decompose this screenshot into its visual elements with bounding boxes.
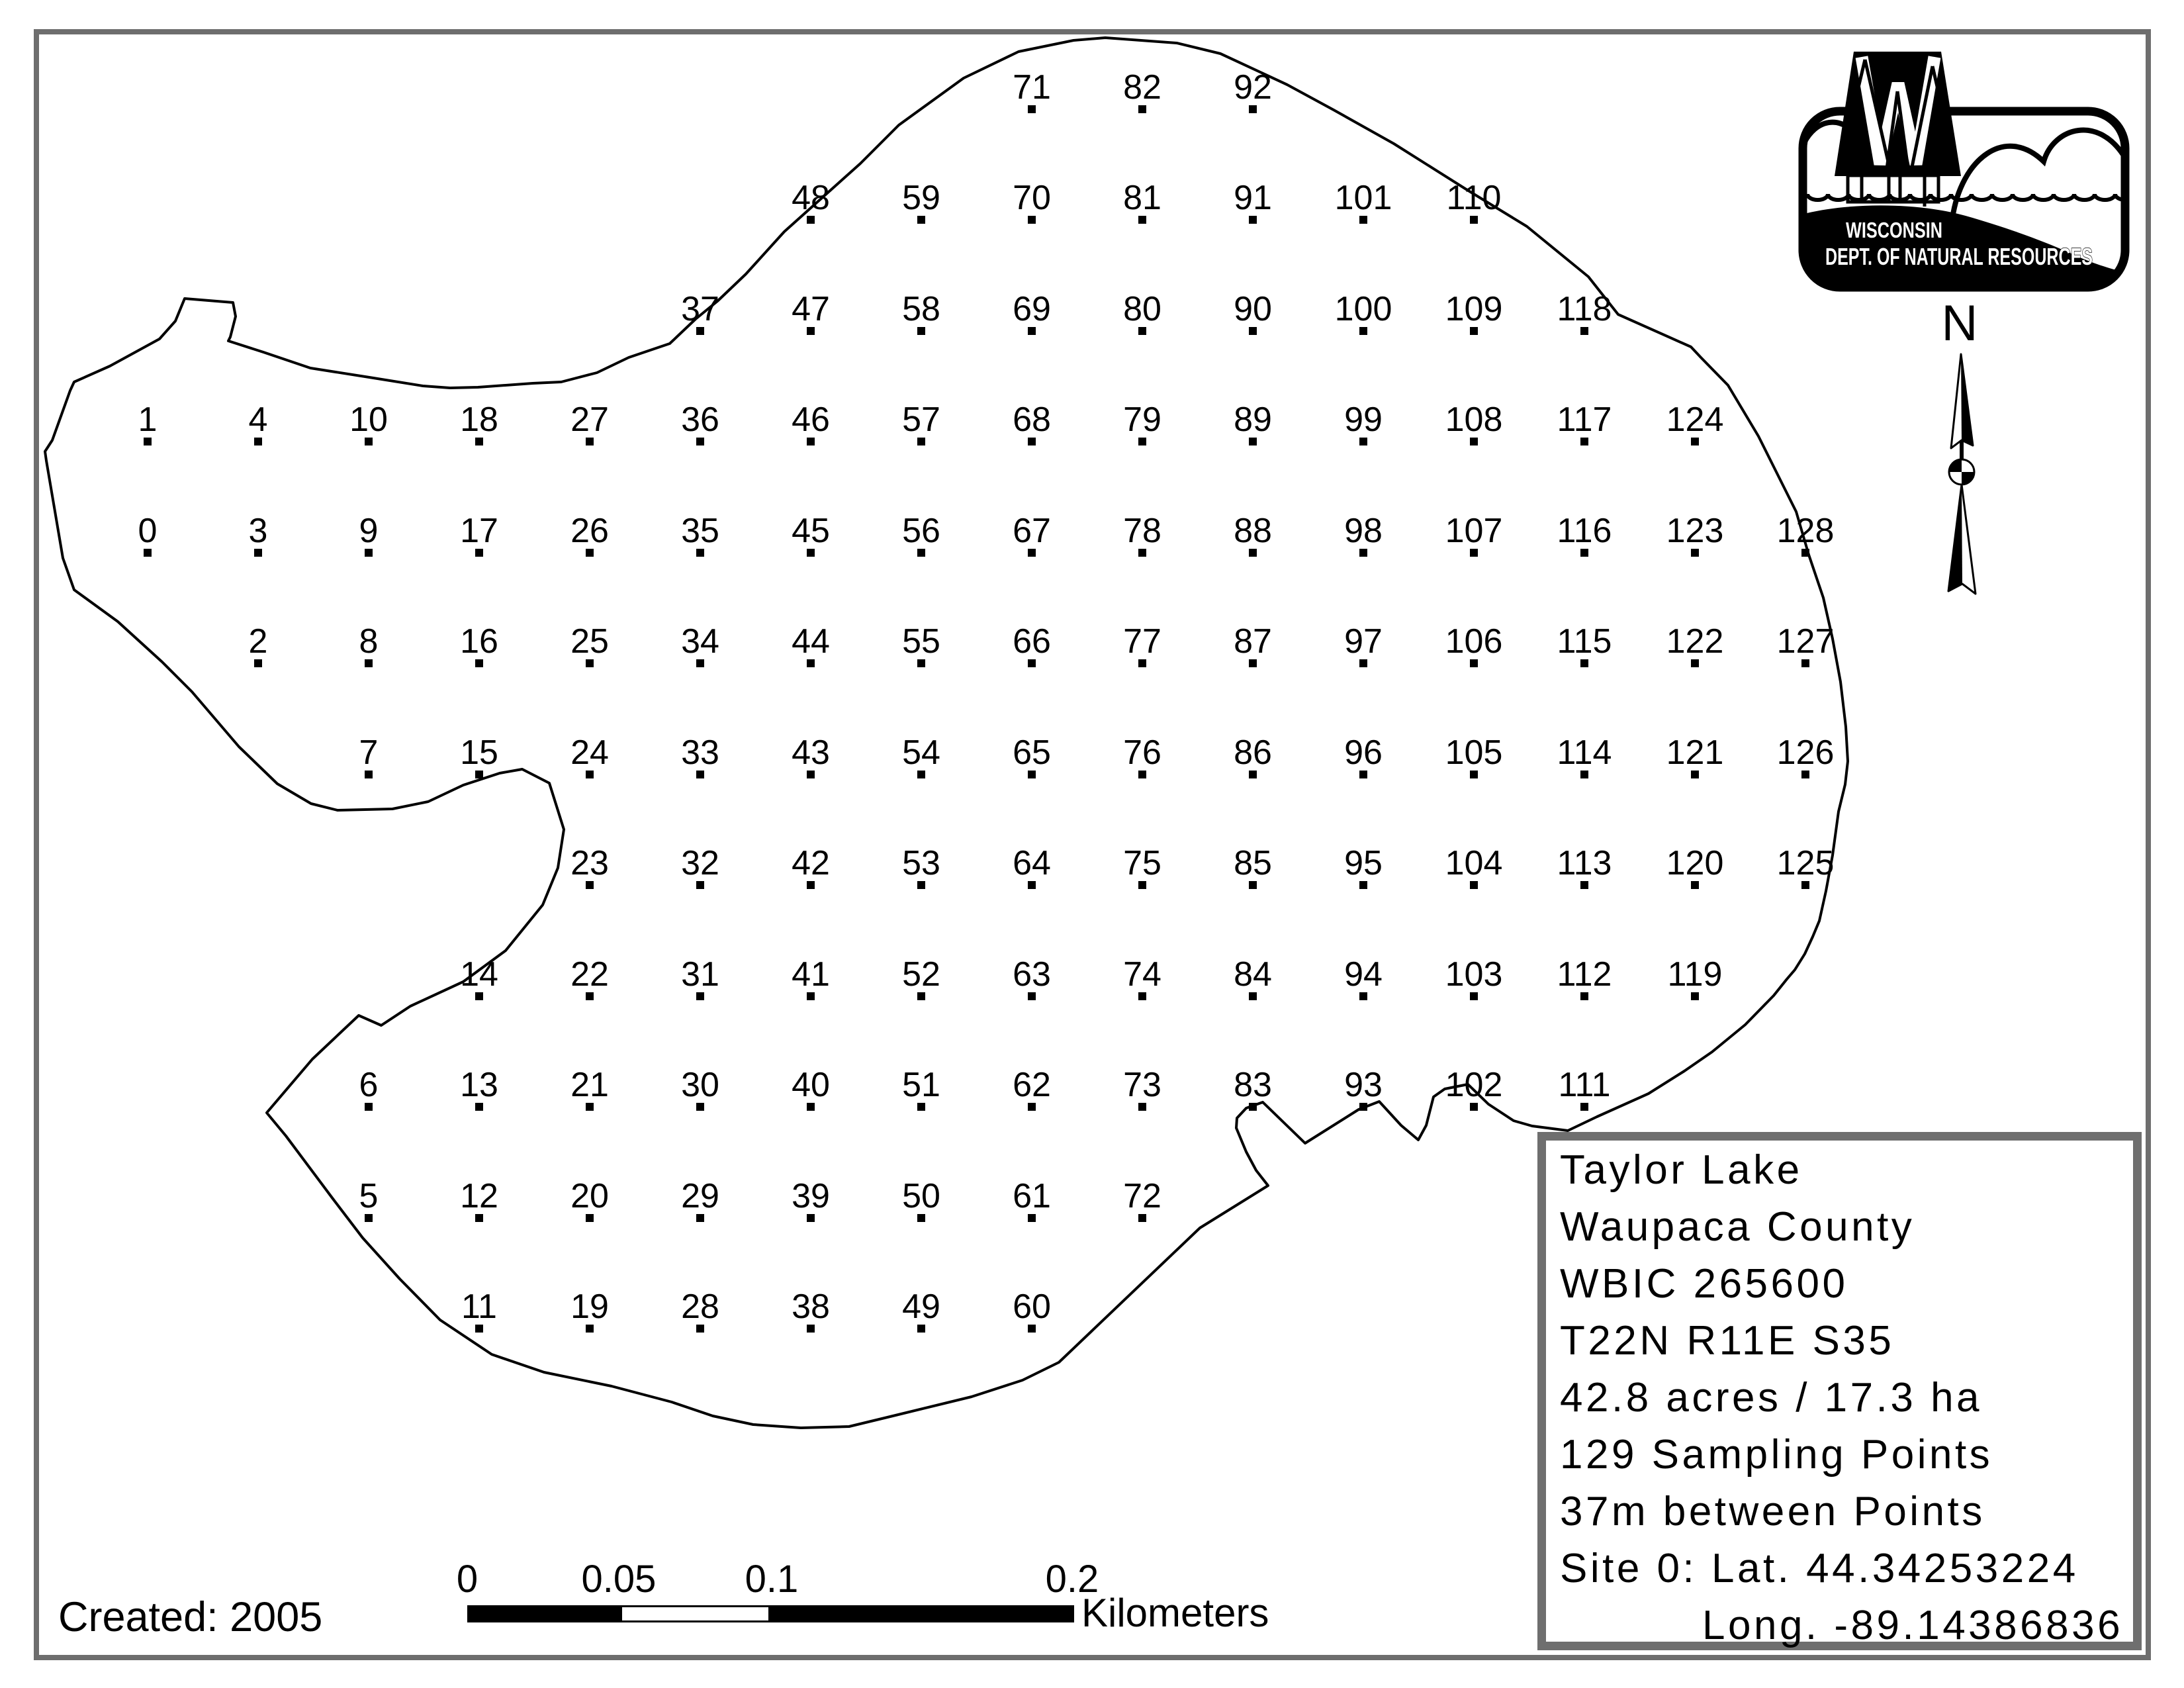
svg-text:12: 12 [460, 1177, 498, 1215]
svg-text:76: 76 [1123, 733, 1161, 772]
svg-text:118: 118 [1557, 290, 1612, 328]
svg-text:80: 80 [1123, 290, 1161, 328]
svg-text:46: 46 [792, 400, 830, 439]
svg-text:102: 102 [1445, 1066, 1503, 1104]
svg-text:95: 95 [1344, 844, 1383, 882]
svg-text:53: 53 [902, 844, 940, 882]
svg-text:Waupaca County: Waupaca County [1560, 1204, 1915, 1250]
svg-text:65: 65 [1013, 733, 1051, 772]
svg-text:19: 19 [570, 1288, 609, 1326]
svg-text:113: 113 [1557, 844, 1612, 882]
svg-text:56: 56 [902, 512, 940, 550]
svg-text:37: 37 [681, 290, 719, 328]
svg-text:83: 83 [1234, 1066, 1272, 1104]
svg-text:74: 74 [1123, 955, 1161, 994]
svg-text:84: 84 [1234, 955, 1272, 994]
svg-text:42: 42 [792, 844, 830, 882]
svg-text:94: 94 [1344, 955, 1383, 994]
svg-text:38: 38 [792, 1288, 830, 1326]
svg-text:30: 30 [681, 1066, 719, 1104]
svg-text:57: 57 [902, 400, 940, 439]
svg-text:15: 15 [460, 733, 498, 772]
svg-text:63: 63 [1013, 955, 1051, 994]
svg-text:0.05: 0.05 [582, 1558, 657, 1601]
svg-text:58: 58 [902, 290, 940, 328]
svg-text:119: 119 [1668, 955, 1723, 994]
svg-text:5: 5 [359, 1177, 379, 1215]
svg-text:10: 10 [349, 400, 388, 439]
svg-text:101: 101 [1335, 179, 1392, 217]
svg-text:4: 4 [249, 400, 268, 439]
svg-text:13: 13 [460, 1066, 498, 1104]
svg-text:11: 11 [461, 1288, 497, 1326]
svg-text:7: 7 [359, 733, 379, 772]
svg-text:127: 127 [1777, 622, 1835, 661]
svg-text:WISCONSIN: WISCONSIN [1846, 218, 1942, 242]
svg-text:3: 3 [249, 512, 268, 550]
svg-text:40: 40 [792, 1066, 830, 1104]
svg-text:25: 25 [570, 622, 609, 661]
svg-text:2: 2 [249, 622, 268, 661]
svg-text:97: 97 [1344, 622, 1383, 661]
svg-text:49: 49 [902, 1288, 940, 1326]
svg-text:67: 67 [1013, 512, 1051, 550]
svg-text:120: 120 [1666, 844, 1724, 882]
svg-text:26: 26 [570, 512, 609, 550]
svg-text:54: 54 [902, 733, 940, 772]
svg-text:109: 109 [1445, 290, 1503, 328]
svg-text:108: 108 [1445, 400, 1503, 439]
svg-text:Site 0: Lat. 44.34253224: Site 0: Lat. 44.34253224 [1560, 1546, 2079, 1591]
svg-text:52: 52 [902, 955, 940, 994]
svg-text:18: 18 [460, 400, 498, 439]
svg-text:36: 36 [681, 400, 719, 439]
svg-text:60: 60 [1013, 1288, 1051, 1326]
svg-text:29: 29 [681, 1177, 719, 1215]
svg-text:69: 69 [1013, 290, 1051, 328]
svg-text:28: 28 [681, 1288, 719, 1326]
svg-text:8: 8 [359, 622, 379, 661]
svg-text:79: 79 [1123, 400, 1161, 439]
svg-text:59: 59 [902, 179, 940, 217]
svg-text:78: 78 [1123, 512, 1161, 550]
svg-text:20: 20 [570, 1177, 609, 1215]
svg-text:125: 125 [1777, 844, 1835, 882]
svg-text:124: 124 [1666, 400, 1724, 439]
svg-text:WBIC 265600: WBIC 265600 [1560, 1261, 1848, 1307]
svg-text:Kilometers: Kilometers [1081, 1591, 1269, 1635]
svg-text:123: 123 [1666, 512, 1724, 550]
svg-text:111: 111 [1558, 1066, 1610, 1104]
svg-text:16: 16 [460, 622, 498, 661]
svg-text:44: 44 [792, 622, 830, 661]
svg-text:55: 55 [902, 622, 940, 661]
svg-text:72: 72 [1123, 1177, 1161, 1215]
svg-text:21: 21 [570, 1066, 609, 1104]
svg-text:129 Sampling Points: 129 Sampling Points [1560, 1432, 1993, 1477]
svg-text:24: 24 [570, 733, 609, 772]
svg-text:N: N [1942, 295, 1978, 352]
svg-text:100: 100 [1335, 290, 1392, 328]
svg-text:75: 75 [1123, 844, 1161, 882]
svg-text:114: 114 [1557, 733, 1612, 772]
svg-text:Created: 2005: Created: 2005 [58, 1594, 322, 1640]
svg-text:64: 64 [1013, 844, 1051, 882]
svg-text:0.1: 0.1 [745, 1558, 799, 1601]
svg-text:87: 87 [1234, 622, 1272, 661]
svg-text:91: 91 [1234, 179, 1272, 217]
svg-text:37m between Points: 37m between Points [1560, 1489, 1985, 1534]
svg-text:122: 122 [1666, 622, 1724, 661]
svg-text:77: 77 [1123, 622, 1161, 661]
svg-text:47: 47 [792, 290, 830, 328]
svg-text:86: 86 [1234, 733, 1272, 772]
svg-text:70: 70 [1013, 179, 1051, 217]
svg-text:22: 22 [570, 955, 609, 994]
svg-text:126: 126 [1777, 733, 1835, 772]
svg-text:104: 104 [1445, 844, 1503, 882]
svg-text:Long. -89.14386836: Long. -89.14386836 [1702, 1603, 2123, 1648]
svg-text:89: 89 [1234, 400, 1272, 439]
svg-text:9: 9 [359, 512, 379, 550]
svg-text:81: 81 [1123, 179, 1161, 217]
svg-text:90: 90 [1234, 290, 1272, 328]
svg-text:105: 105 [1445, 733, 1503, 772]
svg-text:41: 41 [792, 955, 830, 994]
svg-text:106: 106 [1445, 622, 1503, 661]
svg-text:128: 128 [1777, 512, 1835, 550]
svg-text:61: 61 [1013, 1177, 1051, 1215]
svg-text:27: 27 [570, 400, 609, 439]
svg-text:62: 62 [1013, 1066, 1051, 1104]
svg-text:85: 85 [1234, 844, 1272, 882]
svg-text:112: 112 [1557, 955, 1612, 994]
svg-text:51: 51 [902, 1066, 940, 1104]
svg-text:48: 48 [792, 179, 830, 217]
svg-text:50: 50 [902, 1177, 940, 1215]
svg-text:116: 116 [1557, 512, 1612, 550]
svg-text:6: 6 [359, 1066, 379, 1104]
svg-text:115: 115 [1557, 622, 1612, 661]
svg-text:0: 0 [457, 1558, 478, 1601]
svg-text:99: 99 [1344, 400, 1383, 439]
svg-text:107: 107 [1445, 512, 1503, 550]
svg-text:117: 117 [1557, 400, 1612, 439]
svg-text:23: 23 [570, 844, 609, 882]
svg-text:66: 66 [1013, 622, 1051, 661]
svg-text:73: 73 [1123, 1066, 1161, 1104]
svg-text:98: 98 [1344, 512, 1383, 550]
svg-text:35: 35 [681, 512, 719, 550]
svg-text:68: 68 [1013, 400, 1051, 439]
svg-text:42.8 acres / 17.3 ha: 42.8 acres / 17.3 ha [1560, 1375, 1982, 1421]
svg-text:110: 110 [1447, 179, 1502, 217]
svg-text:DEPT. OF NATURAL RESOURCES: DEPT. OF NATURAL RESOURCES [1825, 243, 2093, 270]
svg-text:96: 96 [1344, 733, 1383, 772]
svg-text:1: 1 [138, 400, 158, 439]
svg-text:88: 88 [1234, 512, 1272, 550]
svg-text:93: 93 [1344, 1066, 1383, 1104]
svg-text:121: 121 [1666, 733, 1724, 772]
svg-text:45: 45 [792, 512, 830, 550]
svg-text:71: 71 [1013, 68, 1051, 107]
svg-text:14: 14 [460, 955, 498, 994]
svg-text:31: 31 [681, 955, 719, 994]
svg-text:17: 17 [460, 512, 498, 550]
svg-text:39: 39 [792, 1177, 830, 1215]
svg-text:33: 33 [681, 733, 719, 772]
svg-text:T22N R11E S35: T22N R11E S35 [1560, 1318, 1894, 1364]
svg-text:Taylor Lake: Taylor Lake [1560, 1147, 1803, 1193]
svg-text:92: 92 [1234, 68, 1272, 107]
svg-text:82: 82 [1123, 68, 1161, 107]
svg-text:0: 0 [138, 512, 158, 550]
svg-text:34: 34 [681, 622, 719, 661]
svg-text:43: 43 [792, 733, 830, 772]
svg-text:103: 103 [1445, 955, 1503, 994]
svg-text:32: 32 [681, 844, 719, 882]
